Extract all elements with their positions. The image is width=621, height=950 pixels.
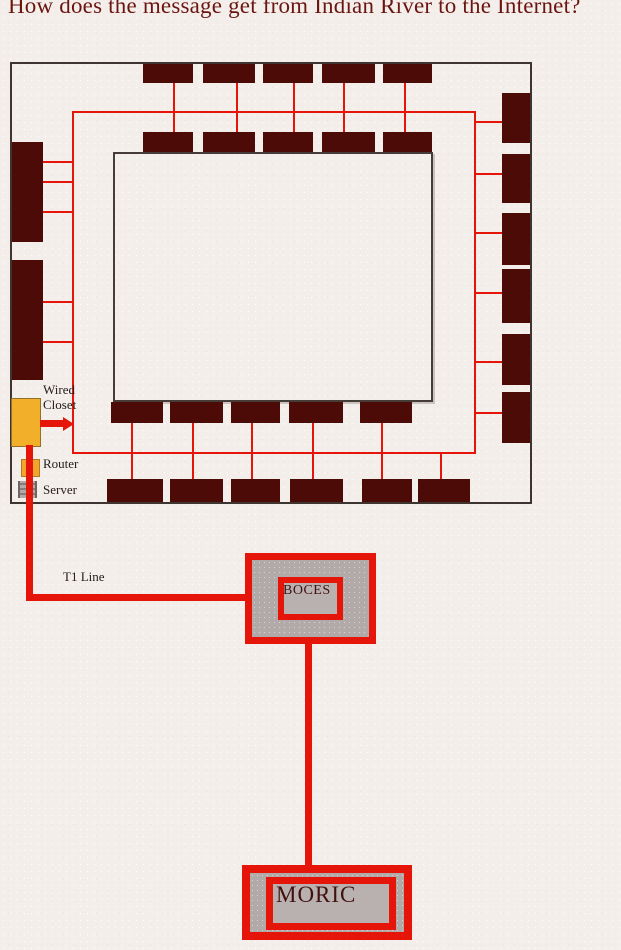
network-wire [173,83,175,132]
classroom-block [502,334,530,385]
classroom-block [263,64,313,83]
network-wire [43,341,72,343]
network-wire [72,111,476,113]
classroom-block [502,154,530,203]
network-wire [343,83,345,132]
network-wire [43,301,72,303]
moric-label: MORIC [276,882,356,908]
network-wire [440,454,442,479]
network-wire [43,211,72,213]
backbone-wire [40,420,65,427]
wired-closet-label-line2: Closet [43,397,76,412]
classroom-block [107,479,163,502]
scanned-page: How does the message get from Indian Riv… [0,0,621,950]
classroom-block [231,402,280,423]
wired-closet-label-line1: Wired [43,382,76,397]
classroom-block [502,392,530,443]
classroom-block [143,64,193,83]
classroom-block [502,269,530,323]
network-wire [476,292,502,294]
classroom-block [290,479,343,502]
classroom-block [322,132,375,152]
backbone-wire [305,643,312,866]
classroom-block [12,142,43,242]
network-wire [476,412,502,414]
network-wire [43,181,72,183]
network-wire [251,423,253,479]
network-wire [476,173,502,175]
classroom-block [12,260,43,380]
network-wire [312,423,314,479]
network-wire [474,111,476,454]
classroom-block [360,402,412,423]
router-label: Router [43,456,78,471]
classroom-block [231,479,280,502]
network-wire [131,423,133,479]
network-wire [236,83,238,132]
classroom-block [502,93,530,143]
classroom-block [502,213,530,265]
classroom-block [383,132,432,152]
boces-label: BOCES [283,583,331,599]
classroom-block [289,402,343,423]
classroom-block [203,132,255,152]
network-wire [476,121,502,123]
classroom-block [170,479,223,502]
page-title: How does the message get from Indian Riv… [8,0,581,19]
classroom-block [170,402,223,423]
backbone-wire [26,445,33,598]
network-wire [404,83,406,132]
arrow-head-icon [63,417,74,431]
classroom-block [143,132,193,152]
network-wire [381,423,383,479]
classroom-block [203,64,255,83]
backbone-wire [26,594,245,601]
wired-closet-box [11,398,41,447]
classroom-block [322,64,375,83]
classroom-block [418,479,470,502]
network-wire [476,232,502,234]
t1-line-label: T1 Line [63,569,105,584]
classroom-block [383,64,432,83]
server-label: Server [43,482,77,497]
courtyard-outline [113,152,433,402]
classroom-block [362,479,412,502]
network-wire [293,83,295,132]
classroom-block [263,132,313,152]
network-wire [43,161,72,163]
classroom-block [111,402,163,423]
network-wire [192,423,194,479]
wired-closet-label: Wired Closet [43,382,76,412]
network-wire [476,361,502,363]
